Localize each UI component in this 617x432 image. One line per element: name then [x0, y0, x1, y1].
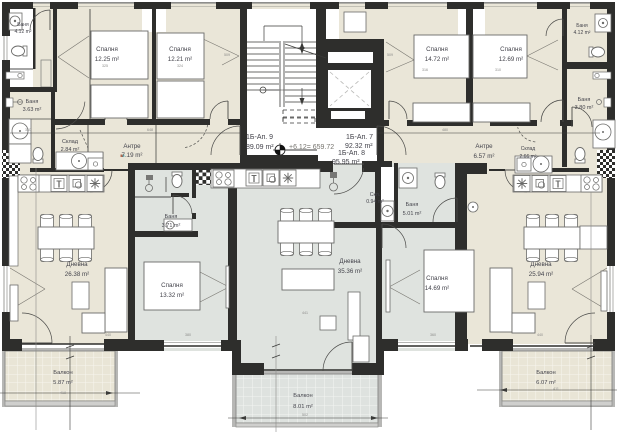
svg-text:Антре: Антре — [475, 143, 493, 150]
svg-text:Балкон: Балкон — [536, 370, 555, 376]
svg-text:Дневна: Дневна — [66, 261, 88, 268]
svg-text:Склад: Склад — [62, 139, 79, 145]
svg-text:Баня: Баня — [26, 99, 39, 105]
svg-text:Балкон: Балкон — [293, 393, 312, 399]
svg-text:+6.12= 659.72: +6.12= 659.72 — [289, 144, 334, 151]
svg-text:4.12 m²: 4.12 m² — [574, 30, 591, 36]
svg-text:380: 380 — [185, 333, 191, 337]
svg-text:3.63 m²: 3.63 m² — [23, 107, 42, 113]
svg-text:440: 440 — [537, 333, 543, 337]
svg-text:Спалня: Спалня — [500, 46, 522, 53]
svg-text:3.71 m²: 3.71 m² — [162, 223, 181, 229]
svg-text:0.94 m²: 0.94 m² — [366, 199, 384, 205]
svg-text:440: 440 — [105, 333, 111, 337]
svg-text:324: 324 — [177, 64, 183, 68]
svg-text:411: 411 — [553, 387, 559, 391]
svg-text:12.21 m²: 12.21 m² — [168, 56, 192, 63]
svg-text:310: 310 — [495, 68, 501, 72]
svg-text:3.80 m²: 3.80 m² — [575, 105, 594, 111]
svg-text:2.84 m²: 2.84 m² — [61, 147, 80, 153]
svg-text:1Б-Ап. 9: 1Б-Ап. 9 — [246, 134, 273, 141]
svg-text:Балкон: Балкон — [53, 370, 72, 376]
svg-text:7.19 m²: 7.19 m² — [122, 152, 143, 159]
svg-text:418: 418 — [60, 391, 66, 395]
svg-text:2.66 m²: 2.66 m² — [520, 154, 537, 160]
svg-text:Дневна: Дневна — [530, 261, 552, 268]
svg-text:Баня: Баня — [406, 202, 419, 208]
svg-text:Баня: Баня — [578, 97, 591, 103]
svg-text:25.94 m²: 25.94 m² — [529, 271, 553, 278]
svg-text:Антре: Антре — [123, 143, 141, 150]
svg-text:14.72 m²: 14.72 m² — [425, 56, 449, 63]
svg-text:89.09 m²: 89.09 m² — [246, 144, 274, 151]
svg-text:13.32 m²: 13.32 m² — [160, 292, 184, 299]
svg-text:360: 360 — [430, 333, 436, 337]
svg-text:95.95 m²: 95.95 m² — [332, 159, 360, 166]
svg-text:316: 316 — [422, 68, 428, 72]
svg-text:26.38 m²: 26.38 m² — [65, 271, 89, 278]
svg-text:502: 502 — [302, 413, 308, 417]
svg-text:12.69 m²: 12.69 m² — [499, 56, 523, 63]
svg-text:35.36 m²: 35.36 m² — [338, 268, 362, 275]
svg-text:Склад: Склад — [521, 146, 536, 152]
svg-text:Спалня: Спалня — [169, 46, 191, 53]
svg-text:Спалня: Спалня — [426, 275, 448, 282]
svg-text:648: 648 — [147, 128, 153, 132]
svg-text:Баня: Баня — [576, 23, 588, 29]
svg-text:6.07 m²: 6.07 m² — [536, 380, 556, 386]
svg-text:Спалня: Спалня — [161, 282, 183, 289]
svg-text:12.25 m²: 12.25 m² — [95, 56, 119, 63]
svg-text:330: 330 — [25, 128, 31, 132]
svg-text:325: 325 — [102, 64, 108, 68]
svg-text:509: 509 — [224, 53, 230, 57]
svg-text:1Б-Ап. 8: 1Б-Ап. 8 — [338, 150, 365, 157]
svg-text:Баня: Баня — [165, 214, 178, 220]
svg-text:Спалня: Спалня — [426, 46, 448, 53]
svg-text:5.87 m²: 5.87 m² — [53, 380, 73, 386]
svg-text:5.01 m²: 5.01 m² — [403, 211, 422, 217]
svg-text:509: 509 — [387, 53, 393, 57]
svg-text:Скл.: Скл. — [370, 192, 381, 198]
svg-text:92.32 m²: 92.32 m² — [345, 143, 373, 150]
svg-text:Спалня: Спалня — [96, 46, 118, 53]
svg-text:Баня: Баня — [17, 22, 29, 28]
svg-text:Дневна: Дневна — [339, 258, 361, 265]
svg-text:14.69 m²: 14.69 m² — [425, 285, 449, 292]
svg-text:480: 480 — [442, 128, 448, 132]
svg-text:6.57 m²: 6.57 m² — [474, 153, 495, 160]
svg-text:8.01 m²: 8.01 m² — [293, 404, 313, 410]
svg-text:4.12 m²: 4.12 m² — [15, 29, 32, 35]
svg-text:1Б-Ап. 7: 1Б-Ап. 7 — [346, 134, 373, 141]
svg-text:441: 441 — [302, 311, 308, 315]
